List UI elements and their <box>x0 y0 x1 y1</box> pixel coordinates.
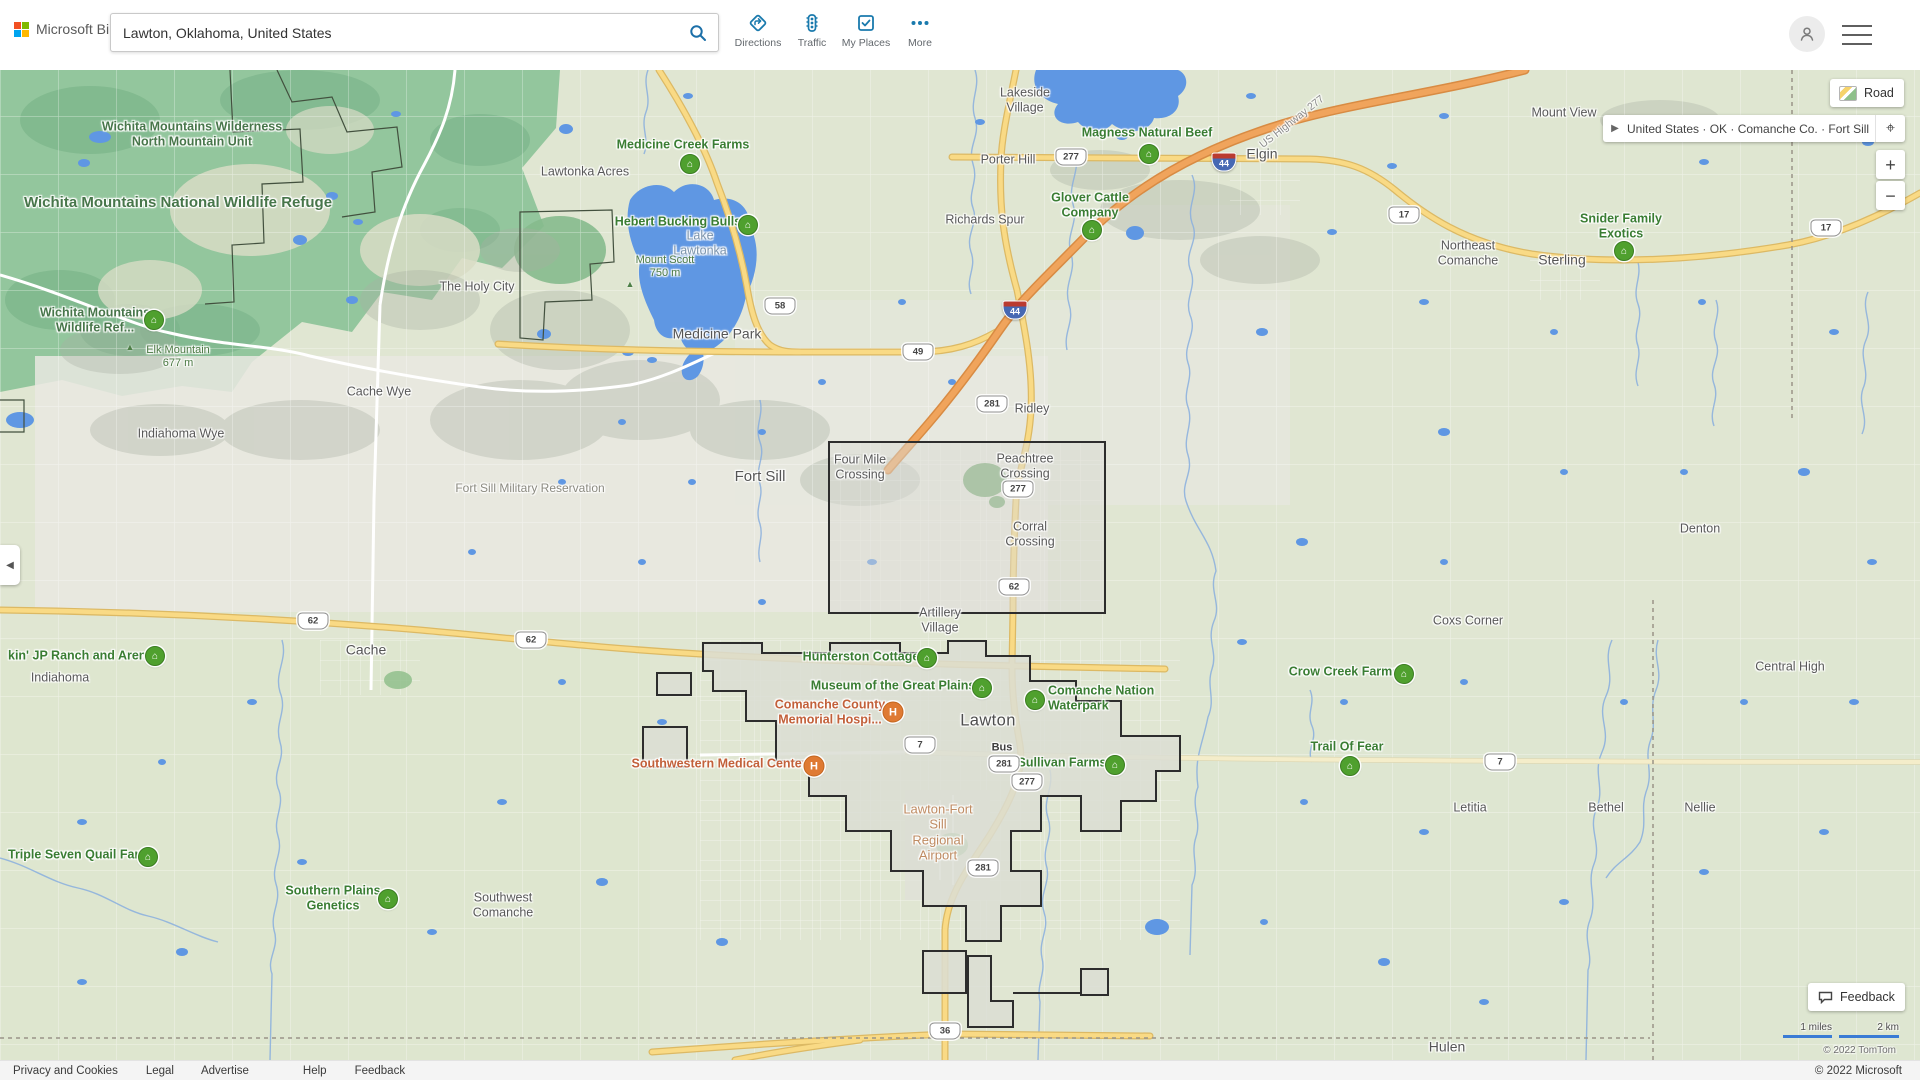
traffic-icon <box>801 12 823 34</box>
map-canvas[interactable] <box>0 70 1920 1060</box>
panel-collapse-tab[interactable]: ◀ <box>0 545 20 585</box>
footer-links: Privacy and CookiesLegalAdvertiseHelpFee… <box>0 1065 405 1077</box>
scale-km-bar <box>1839 1035 1899 1038</box>
my-places-button[interactable]: My Places <box>839 8 893 53</box>
copyright: © 2022 Microsoft <box>1815 1065 1902 1077</box>
search-input[interactable] <box>111 25 678 41</box>
footer-link-help[interactable]: Help <box>303 1065 327 1077</box>
map-feedback-button[interactable]: Feedback <box>1808 983 1905 1011</box>
footer-bar: Privacy and CookiesLegalAdvertiseHelpFee… <box>0 1060 1920 1080</box>
scale-miles-label: 1 miles <box>1783 1022 1832 1033</box>
map-copyright: © 2022 TomTom <box>1700 1045 1896 1056</box>
traffic-button[interactable]: Traffic <box>785 8 839 53</box>
hamburger-menu-icon[interactable] <box>1842 22 1872 48</box>
location-breadcrumb-bar: ▶ United States · OK · Comanche Co. · Fo… <box>1603 115 1905 142</box>
farm-marker-icon[interactable]: ⌂ <box>144 310 164 330</box>
farm-marker-icon[interactable]: ⌂ <box>738 215 758 235</box>
farm-marker-icon[interactable]: ⌂ <box>680 154 700 174</box>
farm-marker-icon[interactable]: ⌂ <box>1340 756 1360 776</box>
hospital-marker-icon[interactable]: H <box>883 702 904 723</box>
search-button[interactable] <box>678 15 718 50</box>
speech-bubble-icon <box>1818 991 1833 1004</box>
farm-marker-icon[interactable]: ⌂ <box>1139 144 1159 164</box>
scale-miles-bar <box>1783 1035 1832 1038</box>
my-places-icon <box>855 12 877 34</box>
scale-km-label: 2 km <box>1839 1022 1899 1033</box>
farm-marker-icon[interactable]: ⌂ <box>1105 755 1125 775</box>
footer-link-privacy-and-cookies[interactable]: Privacy and Cookies <box>13 1065 118 1077</box>
map-style-thumbnail-icon <box>1839 86 1857 101</box>
farm-marker-icon[interactable]: ⌂ <box>378 889 398 909</box>
search-icon <box>689 24 707 42</box>
account-avatar[interactable] <box>1789 16 1825 52</box>
feedback-label: Feedback <box>1840 990 1895 1004</box>
farm-marker-icon[interactable]: ⌂ <box>1025 690 1045 710</box>
farm-marker-icon[interactable]: ⌂ <box>145 646 165 666</box>
hospital-marker-icon[interactable]: H <box>804 756 825 777</box>
map-style-label: Road <box>1864 86 1894 100</box>
farm-marker-icon[interactable]: ⌂ <box>1614 241 1634 261</box>
peak-marker-icon: ▲ <box>626 279 635 289</box>
farm-marker-icon[interactable]: ⌂ <box>917 648 937 668</box>
breadcrumb-expand-icon[interactable]: ▶ <box>1603 115 1627 142</box>
more-icon <box>909 12 931 34</box>
zoom-controls: + − <box>1876 150 1905 210</box>
traffic-label: Traffic <box>798 37 827 49</box>
footer-link-legal[interactable]: Legal <box>146 1065 174 1077</box>
map-style-button[interactable]: Road <box>1830 79 1904 107</box>
map-viewport[interactable] <box>0 70 1920 1060</box>
directions-button[interactable]: Directions <box>731 8 785 53</box>
zoom-in-button[interactable]: + <box>1876 150 1905 179</box>
map-toolbar: Directions Traffic My Places <box>731 8 947 53</box>
top-bar: Microsoft Bing Directions <box>0 0 1920 70</box>
farm-marker-icon[interactable]: ⌂ <box>972 678 992 698</box>
footer-link-advertise[interactable]: Advertise <box>201 1065 249 1077</box>
farm-marker-icon[interactable]: ⌂ <box>1082 220 1102 240</box>
more-label: More <box>908 37 932 49</box>
farm-marker-icon[interactable]: ⌂ <box>138 847 158 867</box>
search-box <box>110 13 719 52</box>
person-icon <box>1798 25 1816 43</box>
zoom-out-button[interactable]: − <box>1876 181 1905 210</box>
locate-me-icon[interactable]: ⌖ <box>1875 115 1905 142</box>
peak-marker-icon: ▲ <box>126 342 135 352</box>
directions-icon <box>747 12 769 34</box>
breadcrumb: United States · OK · Comanche Co. · Fort… <box>1627 122 1875 136</box>
bing-logo[interactable]: Microsoft Bing <box>14 21 125 37</box>
farm-marker-icon[interactable]: ⌂ <box>1394 664 1414 684</box>
more-button[interactable]: More <box>893 8 947 53</box>
footer-link-feedback[interactable]: Feedback <box>355 1065 406 1077</box>
my-places-label: My Places <box>842 37 890 49</box>
directions-label: Directions <box>735 37 782 49</box>
bing-maps-app: Lakeside VillagePorter HillMount ViewLaw… <box>0 0 1920 1080</box>
microsoft-logo-icon <box>14 22 29 37</box>
